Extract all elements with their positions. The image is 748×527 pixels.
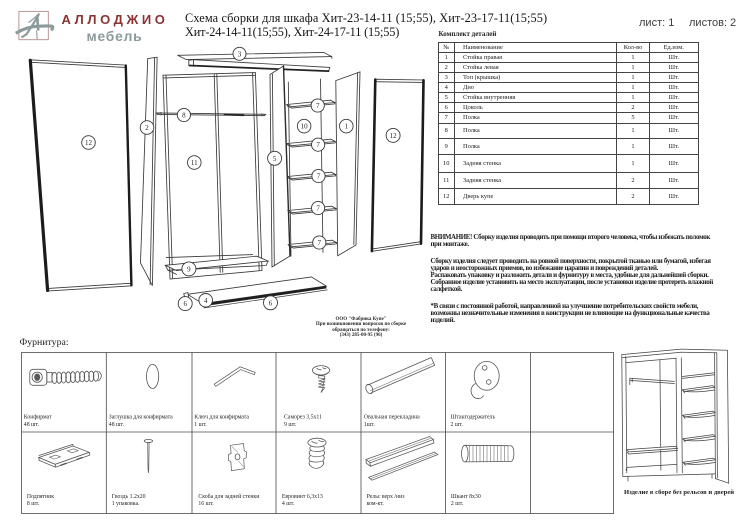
svg-text:Штангодержатель: Штангодержатель bbox=[451, 415, 496, 421]
svg-text:12: 12 bbox=[390, 132, 398, 140]
svg-text:6: 6 bbox=[269, 299, 273, 307]
svg-text:5: 5 bbox=[273, 155, 277, 163]
svg-text:7: 7 bbox=[317, 173, 321, 181]
svg-text:7: 7 bbox=[316, 102, 320, 110]
svg-text:11: 11 bbox=[191, 159, 198, 167]
svg-text:3: 3 bbox=[238, 50, 242, 58]
svg-text:1 шт.: 1 шт. bbox=[194, 422, 207, 428]
svg-text:1 упаковка.: 1 упаковка. bbox=[112, 501, 140, 507]
svg-text:8 шт.: 8 шт. bbox=[27, 501, 40, 507]
svg-text:9: 9 bbox=[187, 265, 191, 273]
svg-text:2 шт.: 2 шт. bbox=[451, 422, 464, 428]
svg-text:Шкант 8x30: Шкант 8x30 bbox=[451, 494, 481, 500]
svg-text:ком-кт.: ком-кт. bbox=[367, 501, 385, 507]
svg-text:10: 10 bbox=[301, 123, 309, 131]
svg-text:Конфирмат: Конфирмат bbox=[24, 414, 52, 421]
svg-text:2: 2 bbox=[145, 124, 149, 132]
svg-text:2 шт.: 2 шт. bbox=[451, 501, 464, 507]
svg-text:4: 4 bbox=[204, 297, 208, 305]
svg-text:8: 8 bbox=[182, 112, 186, 120]
svg-text:Овальная перекладина: Овальная перекладина bbox=[364, 415, 420, 421]
svg-text:1: 1 bbox=[345, 123, 349, 131]
svg-text:16 шт.: 16 шт. bbox=[198, 501, 214, 507]
svg-text:Ключ для конфирмата: Ключ для конфирмата bbox=[194, 414, 249, 421]
svg-text:7: 7 bbox=[318, 239, 322, 247]
svg-text:48 шт.: 48 шт. bbox=[24, 422, 40, 428]
svg-text:4 шт.: 4 шт. bbox=[282, 501, 295, 507]
svg-text:1шт.: 1шт. bbox=[364, 422, 375, 428]
svg-text:12: 12 bbox=[85, 139, 93, 147]
svg-text:Рельс верх /низ: Рельс верх /низ bbox=[367, 494, 406, 500]
svg-text:Гвоздь 1.2x20: Гвоздь 1.2x20 bbox=[112, 494, 146, 500]
svg-text:6: 6 bbox=[183, 300, 187, 308]
svg-text:Подпятник: Подпятник bbox=[27, 494, 54, 500]
svg-text:Скоба для задней стенки: Скоба для задней стенки bbox=[198, 493, 259, 500]
svg-text:Евровинт 6,3x13: Евровинт 6,3x13 bbox=[282, 494, 323, 500]
svg-text:Саморез 3,5x11: Саморез 3,5x11 bbox=[284, 415, 322, 421]
svg-text:Заглушка для конфирмата: Заглушка для конфирмата bbox=[109, 414, 173, 421]
svg-text:7: 7 bbox=[316, 141, 320, 149]
svg-text:9 шт.: 9 шт. bbox=[284, 422, 297, 428]
svg-text:48 шт.: 48 шт. bbox=[109, 422, 125, 428]
svg-text:7: 7 bbox=[316, 205, 320, 213]
